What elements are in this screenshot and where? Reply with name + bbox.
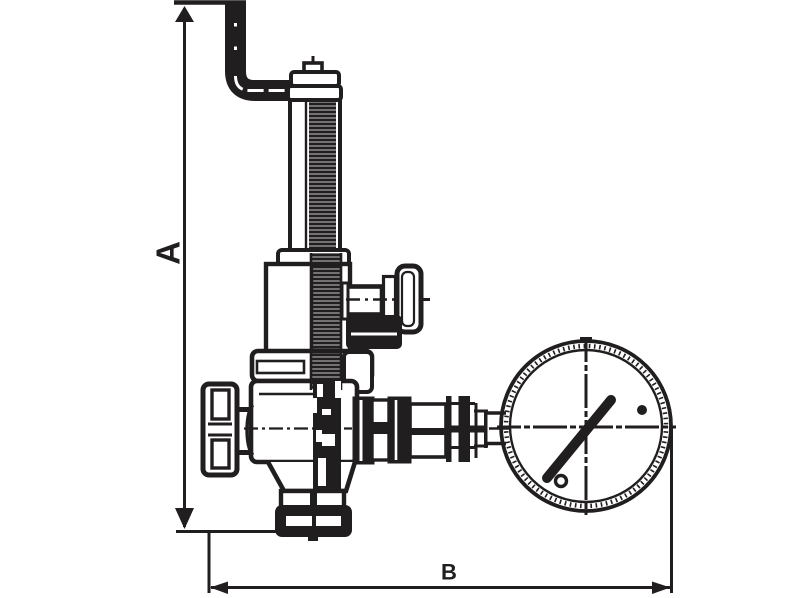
svg-text:A: A [150, 241, 187, 265]
svg-text:B: B [441, 560, 457, 585]
